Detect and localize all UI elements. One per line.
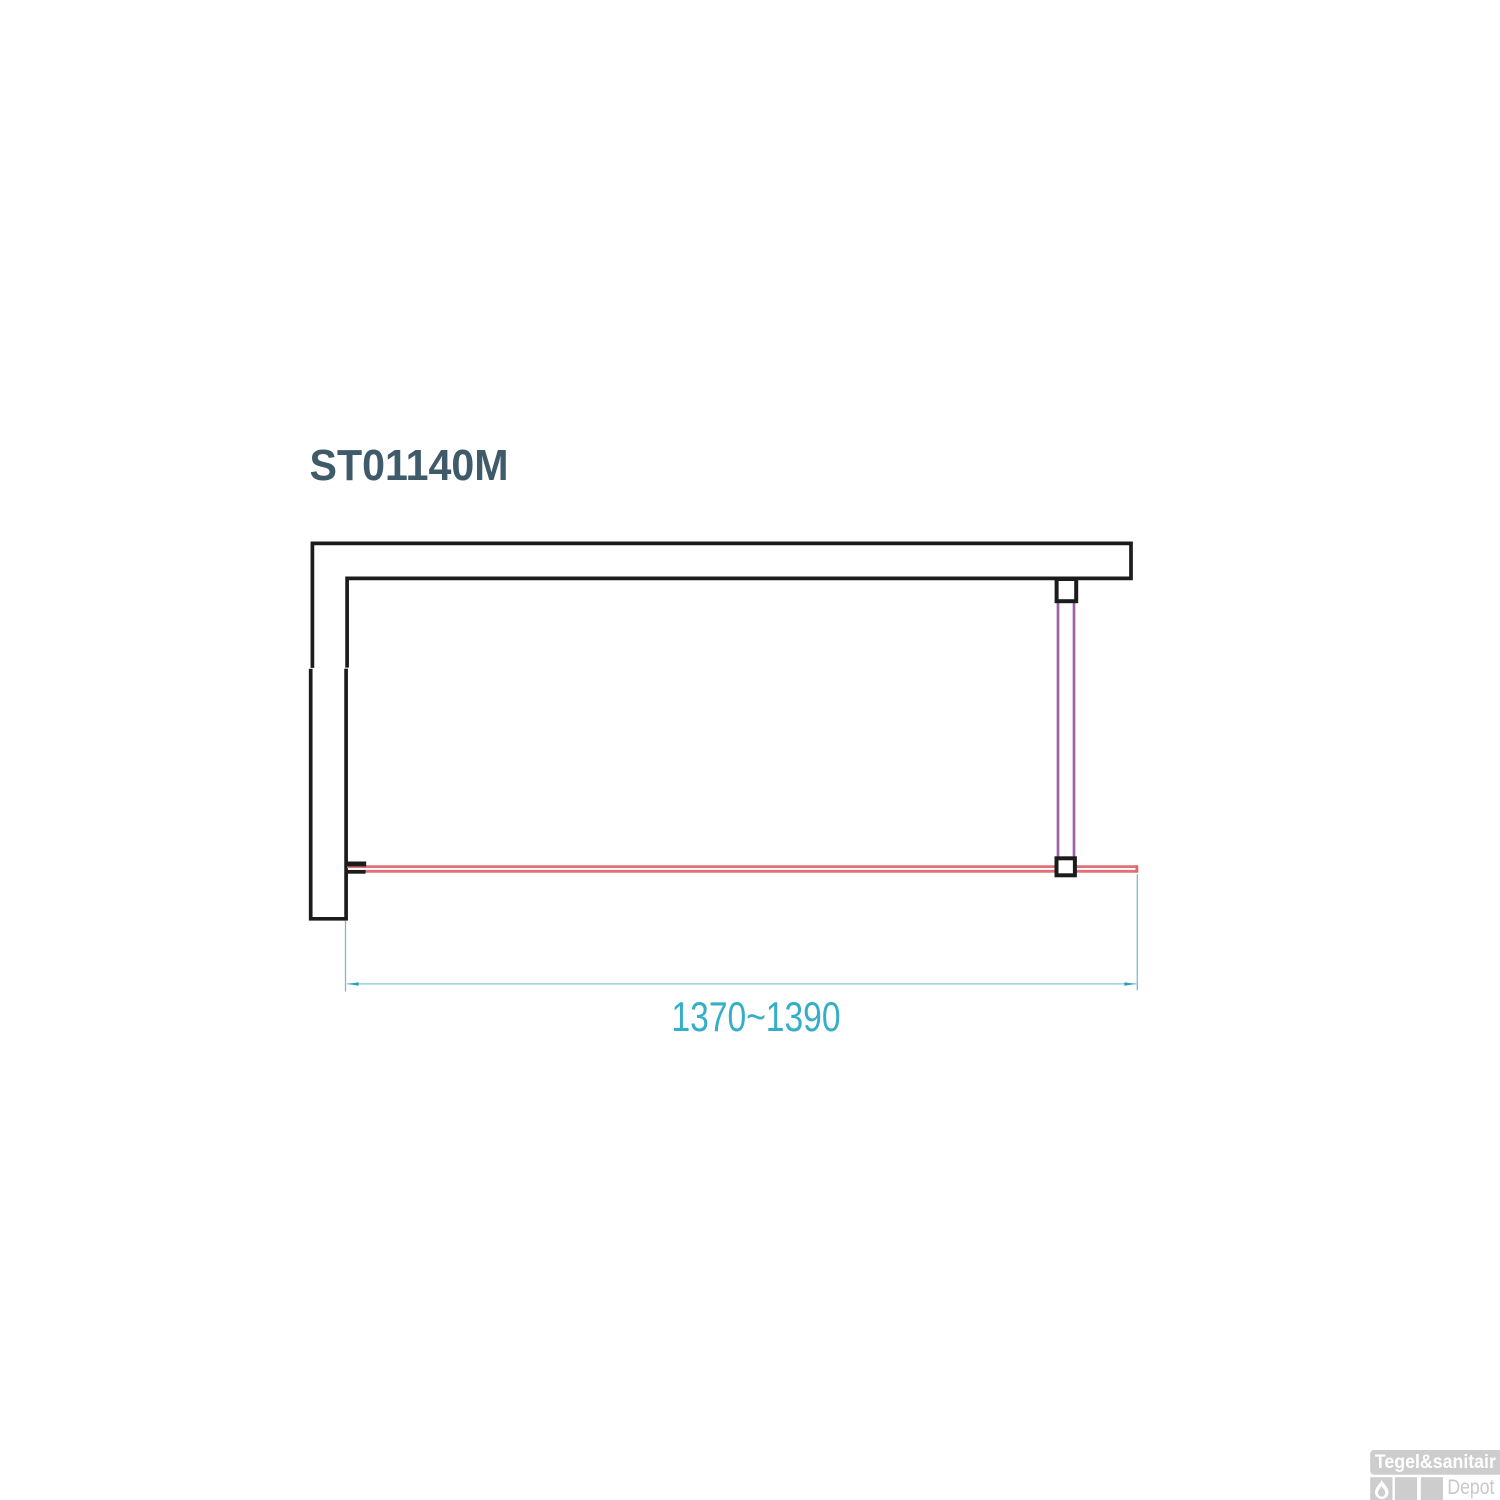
svg-text:Tegel&sanitair: Tegel&sanitair — [1375, 1452, 1497, 1473]
svg-text:Depot: Depot — [1447, 1475, 1494, 1499]
svg-text:1370~1390: 1370~1390 — [671, 995, 840, 1041]
svg-text:ST01140M: ST01140M — [310, 441, 509, 490]
